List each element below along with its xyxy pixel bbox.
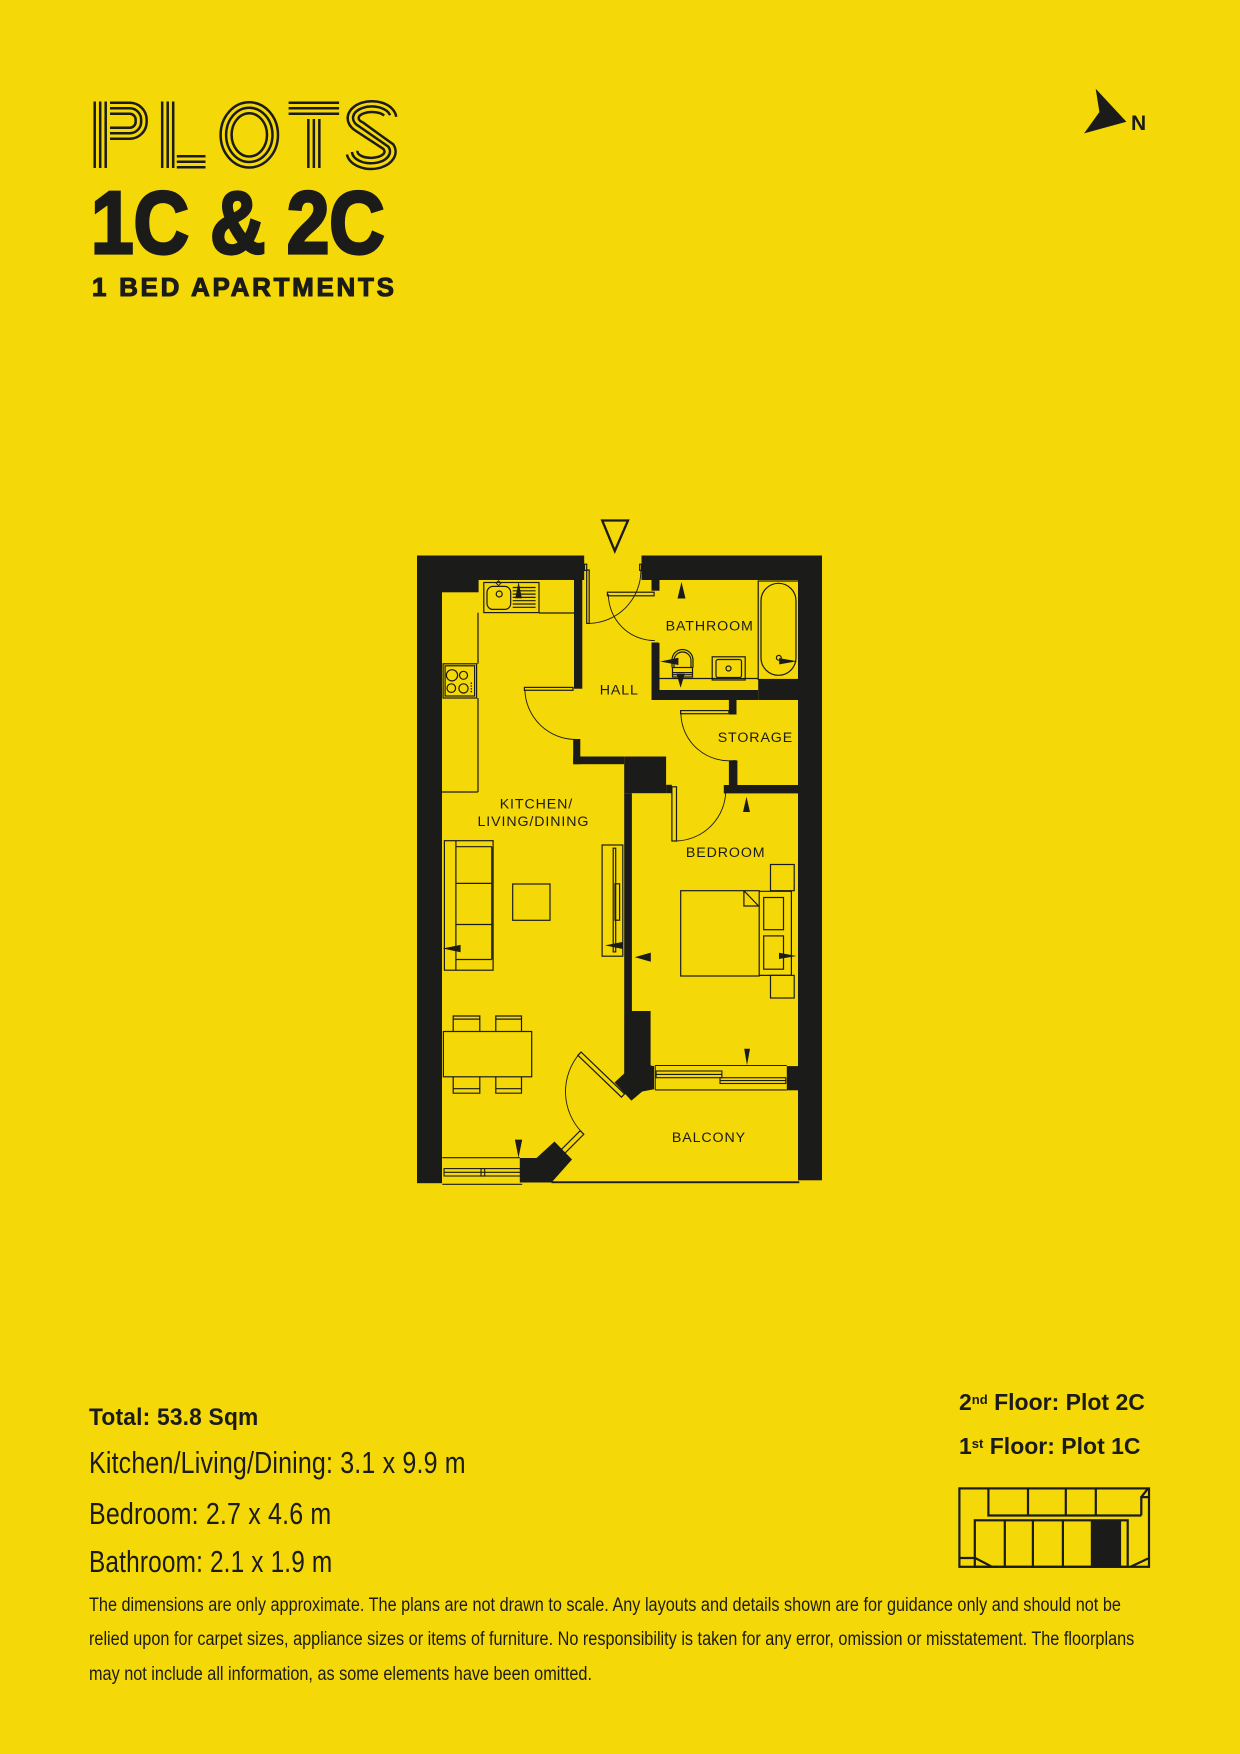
svg-text:BEDROOM: BEDROOM	[686, 845, 766, 861]
svg-text:STORAGE: STORAGE	[718, 730, 793, 746]
svg-text:BALCONY: BALCONY	[672, 1130, 746, 1146]
svg-text:N: N	[1131, 112, 1146, 135]
svg-text:KITCHEN/: KITCHEN/	[500, 796, 573, 812]
svg-text:HALL: HALL	[600, 683, 639, 699]
svg-text:BATHROOM: BATHROOM	[666, 619, 754, 635]
svg-text:LIVING/DINING: LIVING/DINING	[477, 814, 589, 830]
